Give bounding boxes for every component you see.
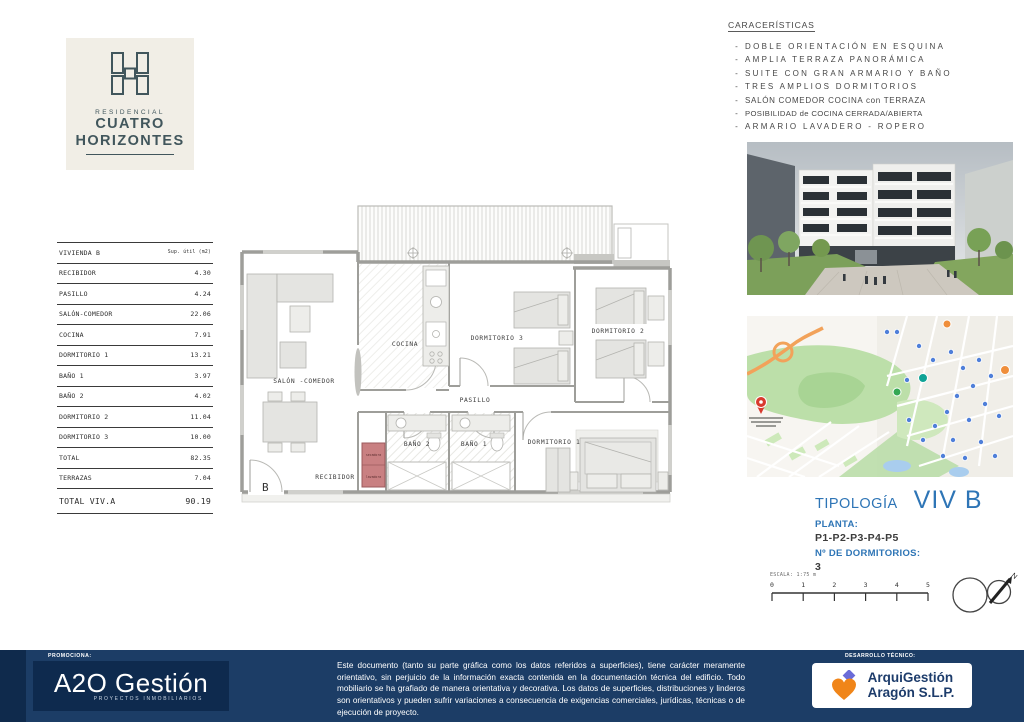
row-value: 3.97 (195, 372, 211, 380)
footer-edge-stripe (0, 650, 26, 722)
terrace-area (358, 206, 612, 262)
scale-label: ESCALA: 1:75 m (770, 572, 946, 578)
promotora-logo: A2O Gestión PROYECTOS INMOBILIARIOS (33, 661, 229, 711)
tipologia-label: TIPOLOGÍA (815, 496, 898, 512)
row-label: SALÓN-COMEDOR (59, 310, 112, 318)
row-value: 10.00 (190, 433, 211, 441)
tecnico-name-line1: ArquiGestión (868, 671, 955, 686)
row-label: BAÑO 2 (59, 392, 84, 400)
table-row: DORMITORIO 310.00 (57, 427, 213, 448)
table-row: DORMITORIO 113.21 (57, 345, 213, 366)
row-value: 4.02 (195, 392, 211, 400)
room-label-cocina: COCINA (392, 341, 418, 348)
row-value: 82.35 (190, 454, 211, 462)
row-value: 22.06 (190, 310, 211, 318)
legal-disclaimer: Este documento (tanto su parte gráfica c… (337, 660, 745, 718)
row-label: DORMITORIO 3 (59, 433, 108, 441)
room-label-dorm3: DORMITORIO 3 (471, 335, 524, 342)
table-unit-name: VIVIENDA B (59, 249, 100, 257)
footer-band: PROMOCIONA: A2O Gestión PROYECTOS INMOBI… (0, 650, 1024, 722)
table-row: DORMITORIO 211.04 (57, 406, 213, 427)
laundry-closet: secadora lavadora (362, 443, 385, 487)
list-item: -ARMARIO LAVADERO - ROPERO (728, 120, 1020, 133)
promotora-name: A2O Gestión (33, 668, 229, 699)
floorplan-drawing: secadora lavadora SALÓN -COMEDOR COCINA … (228, 190, 708, 530)
pivot-door (355, 348, 362, 396)
row-label: BAÑO 1 (59, 372, 84, 380)
table-row: COCINA7.91 (57, 324, 213, 345)
tecnico-name-line2: Aragón S.L.P. (868, 686, 955, 701)
tipologia-value: VIV B (914, 486, 983, 515)
list-item: -POSIBILIDAD de COCINA CERRADA/ABIERTA (728, 107, 1020, 120)
table-row: SALÓN-COMEDOR22.06 (57, 304, 213, 325)
table-row: BAÑO 13.97 (57, 365, 213, 386)
brand-logo: RESIDENCIAL CUATRO HORIZONTES (66, 38, 194, 170)
tipologia-block: TIPOLOGÍA VIV B PLANTA: P1-P2-P3-P4-P5 N… (815, 486, 983, 573)
row-value: 7.91 (195, 331, 211, 339)
row-label: PASILLO (59, 290, 88, 298)
row-label: TOTAL (59, 454, 80, 462)
table-row-grand-total: TOTAL VIV.A90.19 (57, 488, 213, 514)
room-label-bano2: BAÑO 2 (404, 439, 430, 448)
room-label-bano1: BAÑO 1 (461, 439, 487, 448)
row-value: 90.19 (185, 496, 211, 506)
row-label: TERRAZAS (59, 474, 92, 482)
row-label: DORMITORIO 1 (59, 351, 108, 359)
living-room-furniture (247, 274, 333, 452)
list-item: -TRES AMPLIOS DORMITORIOS (728, 80, 1020, 93)
brand-tagline: RESIDENCIAL (66, 109, 194, 116)
list-item: -DOBLE ORIENTACIÓN EN ESQUINA (728, 40, 1020, 53)
building-render-image (747, 142, 1013, 295)
north-compass-icon: N (948, 568, 1022, 621)
location-map-image (747, 316, 1013, 477)
caracteristicas-title: CARACERÍSTICAS (728, 20, 815, 32)
list-item: -SUITE CON GRAN ARMARIO Y BAÑO (728, 67, 1020, 80)
scale-ticks: 0 1 2 3 4 5 (770, 581, 930, 589)
table-header-row: VIVIENDA B Sup. útil (m2) (57, 242, 213, 263)
tecnico-logo: ArquiGestión Aragón S.L.P. (812, 663, 972, 708)
laundry-top-label: secadora (366, 453, 381, 457)
dormitorios-label: Nº DE DORMITORIOS: (815, 548, 983, 559)
row-value: 7.04 (195, 474, 211, 482)
brand-h-icon (111, 52, 149, 100)
row-value: 11.04 (190, 413, 211, 421)
room-label-dorm1: DORMITORIO 1 (528, 439, 581, 446)
scale-ruler (770, 592, 934, 602)
surface-table: VIVIENDA B Sup. útil (m2) RECIBIDOR4.30 … (57, 242, 213, 514)
brand-underline (86, 154, 174, 155)
row-label: TOTAL VIV.A (59, 496, 115, 506)
planta-value: P1-P2-P3-P4-P5 (815, 532, 983, 544)
table-row: TERRAZAS7.04 (57, 468, 213, 489)
table-row-total: TOTAL82.35 (57, 447, 213, 468)
promociona-label: PROMOCIONA: (48, 653, 92, 659)
caracteristicas-list: -DOBLE ORIENTACIÓN EN ESQUINA -AMPLIA TE… (728, 40, 1020, 134)
brochure-page: RESIDENCIAL CUATRO HORIZONTES VIVIENDA B… (0, 0, 1024, 722)
kitchen-furniture (423, 266, 449, 366)
table-sup-header: Sup. útil (m2) (168, 250, 211, 255)
row-value: 4.24 (195, 290, 211, 298)
room-label-pasillo: PASILLO (460, 397, 491, 404)
row-value: 4.30 (195, 269, 211, 277)
list-item: -AMPLIA TERRAZA PANORÁMICA (728, 53, 1020, 66)
room-label-recibidor: RECIBIDOR (315, 474, 355, 481)
planta-label: PLANTA: (815, 519, 983, 530)
scale-bar: ESCALA: 1:75 m 0 1 2 3 4 5 (770, 572, 946, 607)
room-label-dorm2: DORMITORIO 2 (592, 328, 645, 335)
arquigestion-icon (830, 670, 860, 702)
plan-corner-letter: B (262, 481, 269, 494)
table-row: BAÑO 24.02 (57, 386, 213, 407)
row-value: 13.21 (190, 351, 211, 359)
row-label: DORMITORIO 2 (59, 413, 108, 421)
brand-name-line1: CUATRO (66, 116, 194, 133)
table-row: PASILLO4.24 (57, 283, 213, 304)
desarrollo-label: DESARROLLO TÉCNICO: (845, 653, 915, 659)
brand-name-line2: HORIZONTES (66, 133, 194, 150)
room-label-salon: SALÓN -COMEDOR (273, 376, 334, 385)
list-item: -SALÓN COMEDOR COCINA con TERRAZA (728, 94, 1020, 107)
row-label: COCINA (59, 331, 84, 339)
caracteristicas-section: CARACERÍSTICAS -DOBLE ORIENTACIÓN EN ESQ… (728, 15, 1020, 134)
row-label: RECIBIDOR (59, 269, 96, 277)
table-row: RECIBIDOR4.30 (57, 263, 213, 284)
laundry-bottom-label: lavadora (366, 475, 381, 479)
